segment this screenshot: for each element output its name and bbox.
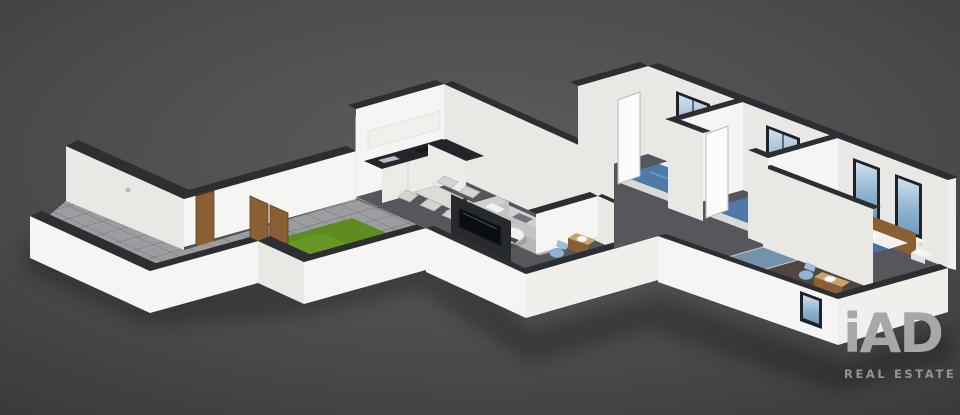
brand-text: iAD [843, 302, 942, 365]
tagline-text: REAL ESTATE [844, 367, 956, 381]
door-leaf [618, 92, 640, 184]
floorplan-render: iAD REAL ESTATE [0, 0, 960, 415]
floorplan-screenshot: iAD REAL ESTATE [0, 0, 960, 415]
east-end-return [948, 178, 956, 270]
iad-logo: iAD REAL ESTATE [843, 302, 956, 381]
bath-partition-return [598, 196, 614, 243]
bedside-lamp [919, 242, 923, 246]
hallway-wall [748, 150, 768, 246]
wooden-door [196, 191, 214, 248]
wall-lamp [126, 188, 131, 193]
door-leaf [706, 126, 728, 218]
hallway-wall [668, 120, 703, 221]
